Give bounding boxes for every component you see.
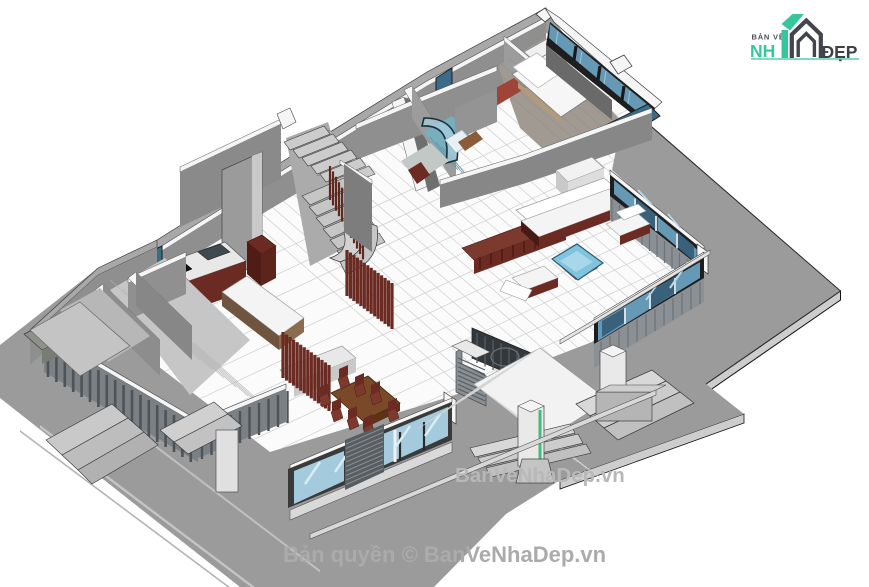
svg-text:NH: NH: [750, 41, 775, 61]
svg-text:Bản quyền © BanVeNhaDep.vn: Bản quyền © BanVeNhaDep.vn: [283, 542, 606, 567]
svg-text:BanVeNhaDep.vn: BanVeNhaDep.vn: [455, 464, 625, 487]
